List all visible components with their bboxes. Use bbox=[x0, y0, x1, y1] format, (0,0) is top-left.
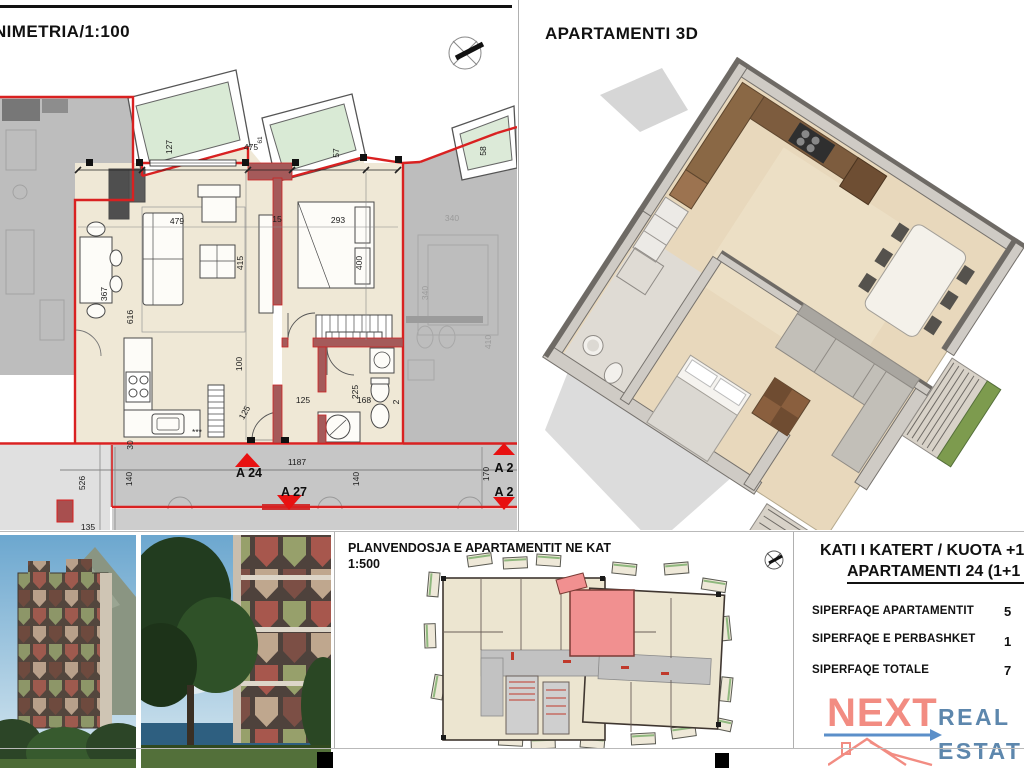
logo-estate-text: ESTATE bbox=[938, 740, 1024, 763]
dim-label: A 24 bbox=[236, 466, 262, 480]
dim-label: 170 bbox=[481, 467, 491, 481]
dim-label: 140 bbox=[124, 472, 134, 486]
info-title-line2-wrap: APARTAMENTI 24 (1+1 bbox=[847, 563, 1024, 584]
info-row-label-3: SIPERFAQE TOTALE bbox=[812, 664, 929, 676]
building-photo-1 bbox=[0, 535, 136, 768]
dim-label: 415 bbox=[235, 256, 245, 270]
info-title-line2: APARTAMENTI 24 (1+1 bbox=[847, 563, 1024, 584]
logo-house-icon bbox=[828, 734, 948, 768]
dim-label: 100 bbox=[234, 357, 244, 371]
dim-label: 410 bbox=[483, 335, 493, 349]
keyplan-compass-icon bbox=[765, 551, 783, 569]
logo-real-text: REAL bbox=[938, 706, 1011, 729]
balcony-north-3 bbox=[452, 106, 517, 180]
info-row-value-3: 7 bbox=[1004, 663, 1011, 678]
apartment-3d-drawing bbox=[517, 0, 1024, 530]
dim-label: 58 bbox=[478, 146, 488, 156]
dim-label: 135 bbox=[81, 522, 95, 530]
compass-icon bbox=[449, 37, 483, 69]
dim-label: A 2 bbox=[495, 461, 514, 475]
footer-mark-right bbox=[715, 753, 729, 768]
keyplan-drawing bbox=[331, 532, 790, 748]
dim-label: 140 bbox=[351, 472, 361, 486]
info-row-label-1: SIPERFAQE APARTAMENTIT bbox=[812, 605, 974, 617]
dim-label: *** bbox=[192, 427, 203, 437]
dim-label: 57 bbox=[331, 148, 341, 158]
kitchen-radiator bbox=[208, 385, 224, 437]
dim-label: 127 bbox=[164, 140, 174, 154]
dim-label: 30 bbox=[125, 440, 135, 450]
info-row-value-1: 5 bbox=[1004, 604, 1011, 619]
keyplan-building bbox=[441, 573, 725, 740]
divider-info-left bbox=[793, 532, 794, 748]
dim-label: 340 bbox=[420, 286, 430, 300]
info-title-line1: KATI I KATERT / KUOTA +1 bbox=[820, 542, 1024, 560]
dim-label: 1187 bbox=[288, 457, 307, 467]
dim-label: A 27 bbox=[281, 485, 307, 499]
drawing-sheet: NIMETRIA/1:100 bbox=[0, 0, 1024, 768]
dim-label: 15 bbox=[272, 214, 282, 224]
dim-label: 125 bbox=[296, 395, 310, 405]
dim-label: 168 bbox=[357, 395, 371, 405]
dim-label: 479 bbox=[170, 216, 184, 226]
dim-label: 367 bbox=[99, 287, 109, 301]
dim-label: 526 bbox=[77, 476, 87, 490]
footer-line bbox=[0, 748, 1024, 749]
footer-mark-left bbox=[317, 752, 333, 768]
dim-label: 400 bbox=[354, 256, 364, 270]
dim-label: 61 bbox=[257, 136, 264, 144]
info-row-label-2: SIPERFAQE E PERBASHKET bbox=[812, 633, 976, 645]
building-photo-2 bbox=[141, 535, 331, 768]
shadow-top bbox=[600, 68, 688, 132]
floor-plan-drawing: 1274756157584791529341540061636710012512… bbox=[0, 0, 517, 530]
logo-next-text: NEXT bbox=[827, 693, 938, 733]
dim-label: 2 bbox=[391, 399, 401, 404]
dim-label: 340 bbox=[445, 213, 459, 223]
info-row-value-2: 1 bbox=[1004, 634, 1011, 649]
tower bbox=[18, 573, 108, 728]
dim-label: 616 bbox=[125, 310, 135, 324]
balcony-doors bbox=[150, 160, 236, 166]
dim-label: 293 bbox=[331, 215, 345, 225]
dim-label: A 2 bbox=[495, 485, 514, 499]
